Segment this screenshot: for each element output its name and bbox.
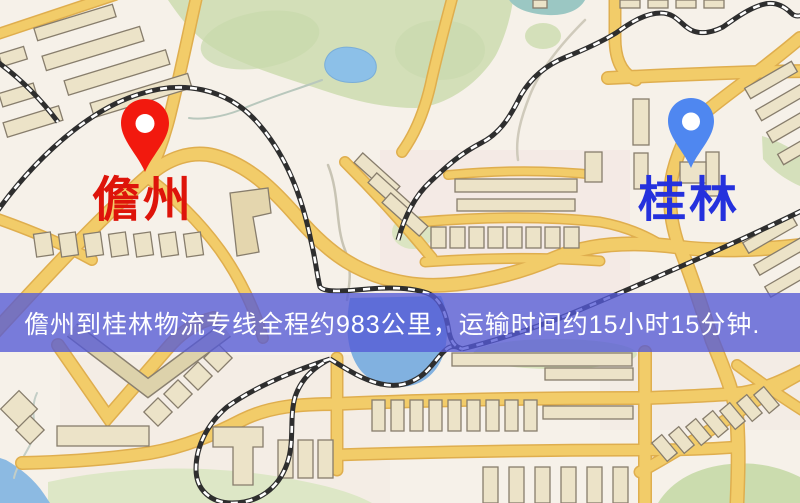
route-info-banner: 儋州到桂林物流专线全程约983公里，运输时间约15小时15分钟. xyxy=(0,293,800,352)
pin-hole xyxy=(682,113,700,131)
route-info-text: 儋州到桂林物流专线全程约983公里，运输时间约15小时15分钟. xyxy=(0,305,760,341)
origin-city-label: 儋州 xyxy=(92,177,194,225)
pin-hole xyxy=(136,114,155,133)
map-canvas xyxy=(0,0,800,503)
destination-city-label: 桂林 xyxy=(638,177,740,225)
route-map-screen: 儋州 桂林 儋州到桂林物流专线全程约983公里，运输时间约15小时15分钟. xyxy=(0,0,800,503)
